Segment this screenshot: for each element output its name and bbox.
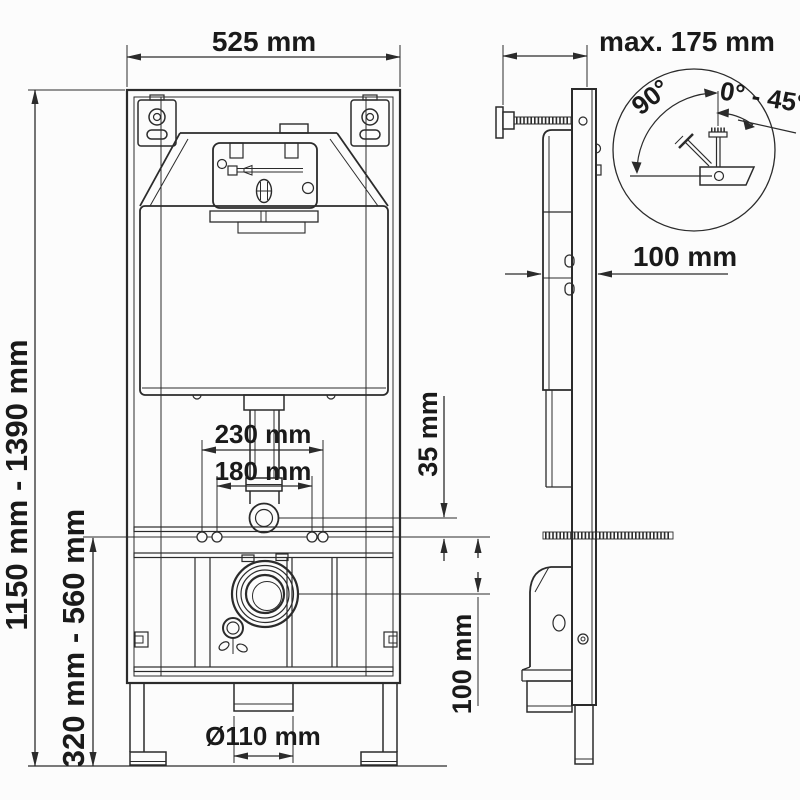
bolt-outer-label: 230 mm (215, 419, 312, 449)
side-fixing-tab-right (384, 632, 397, 647)
flush-valve-cover (238, 222, 305, 233)
inlet-offset-label: 35 mm (413, 391, 443, 477)
depth-label: 100 mm (633, 241, 737, 272)
wc-fixing-stud (543, 532, 673, 539)
anchor-tilted-head (679, 134, 693, 148)
drain-socket (217, 554, 298, 654)
dimension-width: 525 mm (127, 26, 400, 87)
bracket-slot (360, 130, 380, 139)
drain-opening (246, 575, 284, 613)
bolt-hole-inner-right (307, 532, 317, 542)
bracket-hole (149, 109, 165, 125)
outlet-diameter-label: Ø110 mm (205, 721, 321, 751)
dimension-stud-to-drain: 100 mm (447, 539, 478, 714)
lever-grip (244, 166, 252, 176)
anchor-bracket-hole (715, 172, 724, 181)
cistern-neck-left-slant (140, 133, 180, 206)
tilt-range-label: 0° - 45° (718, 75, 800, 118)
dimension-outlet-diameter: Ø110 mm (205, 716, 321, 763)
swing-arc-arrow-bottom (632, 162, 642, 175)
outlet-box (234, 683, 293, 711)
side-fixing-tab-left-inner (135, 636, 143, 643)
outlet-pipe-side (527, 681, 572, 712)
rail-foot (575, 705, 593, 764)
height-range-label: 1150 mm - 1390 mm (0, 339, 34, 630)
elbow-inner-slant (535, 567, 549, 592)
rail-screw-center (581, 637, 585, 641)
wall-distance-label: max. 175 mm (599, 26, 775, 57)
wc-fixing-holes (83, 532, 490, 542)
anchor-tilted-rod-a (685, 142, 709, 166)
water-inlet-ring (250, 504, 279, 533)
width-label: 525 mm (212, 26, 316, 57)
bolt-hole-outer-left (197, 532, 207, 542)
rail-screw (578, 634, 588, 644)
cistern (140, 124, 388, 399)
anchor-tilted-head-mark (675, 136, 683, 144)
swing-arc-arrow-top (704, 89, 718, 98)
cistern-neck-right-slant (337, 133, 388, 206)
bottom-outlet (234, 683, 293, 711)
cistern-tank (140, 206, 388, 395)
cistern-side-outline (543, 130, 572, 390)
rail-middle (134, 553, 393, 558)
drain-ring-outer (232, 561, 298, 627)
clamp-wing-right (236, 643, 249, 654)
wall-plate (496, 107, 503, 138)
dimension-inlet-offset: 35 mm (413, 391, 444, 561)
detail-view: 90° 0° - 45° (613, 69, 800, 231)
pipe-flange (244, 395, 284, 410)
elbow-hole (553, 615, 565, 631)
panel-tab-right (285, 143, 298, 158)
anchor-nut (503, 112, 514, 129)
foot-left (130, 752, 166, 765)
foot-right (361, 752, 397, 765)
cistern-profile (543, 130, 574, 487)
supply-clamp-hole (227, 622, 239, 634)
bolt-hole-outer-right (318, 532, 328, 542)
bracket-hole-center (154, 114, 161, 121)
cistern-neck-left-inner (150, 139, 188, 206)
bolt-inner-label: 180 mm (215, 456, 312, 486)
swing-angle-label: 90° (626, 73, 675, 121)
drain-clip-left (242, 555, 254, 562)
dimension-depth: 100 mm (505, 241, 737, 274)
lower-range-label: 320 mm - 560 mm (56, 509, 91, 767)
access-panel (213, 143, 317, 208)
side-view (28, 89, 673, 766)
anchor-tilted-rod-b (688, 140, 712, 164)
panel-tab-left (230, 143, 243, 158)
mounting-bracket-right (351, 95, 389, 146)
lever-plug (228, 166, 237, 175)
drain-socket-depth (253, 582, 282, 611)
bracket-slot (147, 130, 167, 139)
panel-screw-right (303, 183, 314, 194)
bracket-hole (362, 109, 378, 125)
bracket-hole-center (367, 114, 374, 121)
dimension-lower-range: 320 mm - 560 mm (56, 509, 93, 767)
cistern-top-tab (280, 124, 308, 133)
wall-anchor (496, 107, 571, 138)
rail-anchor-hole (579, 117, 587, 125)
cross-rails (134, 527, 397, 672)
elbow-outline (530, 567, 572, 667)
drain-elbow (522, 567, 588, 712)
cistern-neck-right-inner (330, 139, 378, 206)
bolt-hole-inner-left (212, 532, 222, 542)
technical-drawing-page: 90° 0° - 45° 525 mm 1150 mm - 1390 mm 32… (0, 0, 800, 800)
stud-to-drain-label: 100 mm (447, 614, 477, 715)
installation-frame-drawing: 90° 0° - 45° 525 mm 1150 mm - 1390 mm 32… (0, 0, 800, 800)
side-rail (572, 89, 601, 764)
anchor-vertical-head (709, 132, 727, 137)
frame-inner-rect (134, 97, 393, 676)
flush-valve-housing (210, 211, 318, 222)
mounting-bracket-left (138, 95, 176, 146)
panel-screw-left (218, 160, 227, 169)
rail-lower (134, 667, 393, 672)
supply-clamp-ring (223, 618, 243, 638)
side-fixing-tab-left (135, 632, 148, 647)
clamp-wing-left (217, 640, 230, 652)
